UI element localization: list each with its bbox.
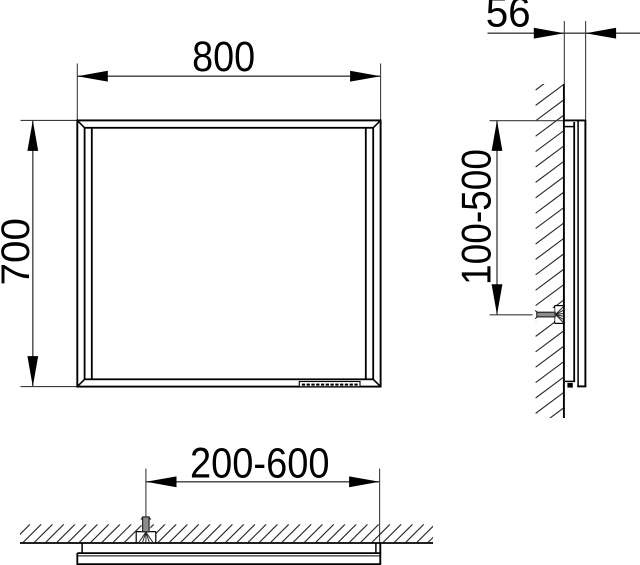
- svg-text:700: 700: [0, 218, 38, 286]
- svg-text:56: 56: [486, 0, 531, 36]
- svg-text:200-600: 200-600: [190, 440, 330, 488]
- svg-text:100-500: 100-500: [453, 149, 500, 285]
- svg-text:800: 800: [192, 33, 255, 81]
